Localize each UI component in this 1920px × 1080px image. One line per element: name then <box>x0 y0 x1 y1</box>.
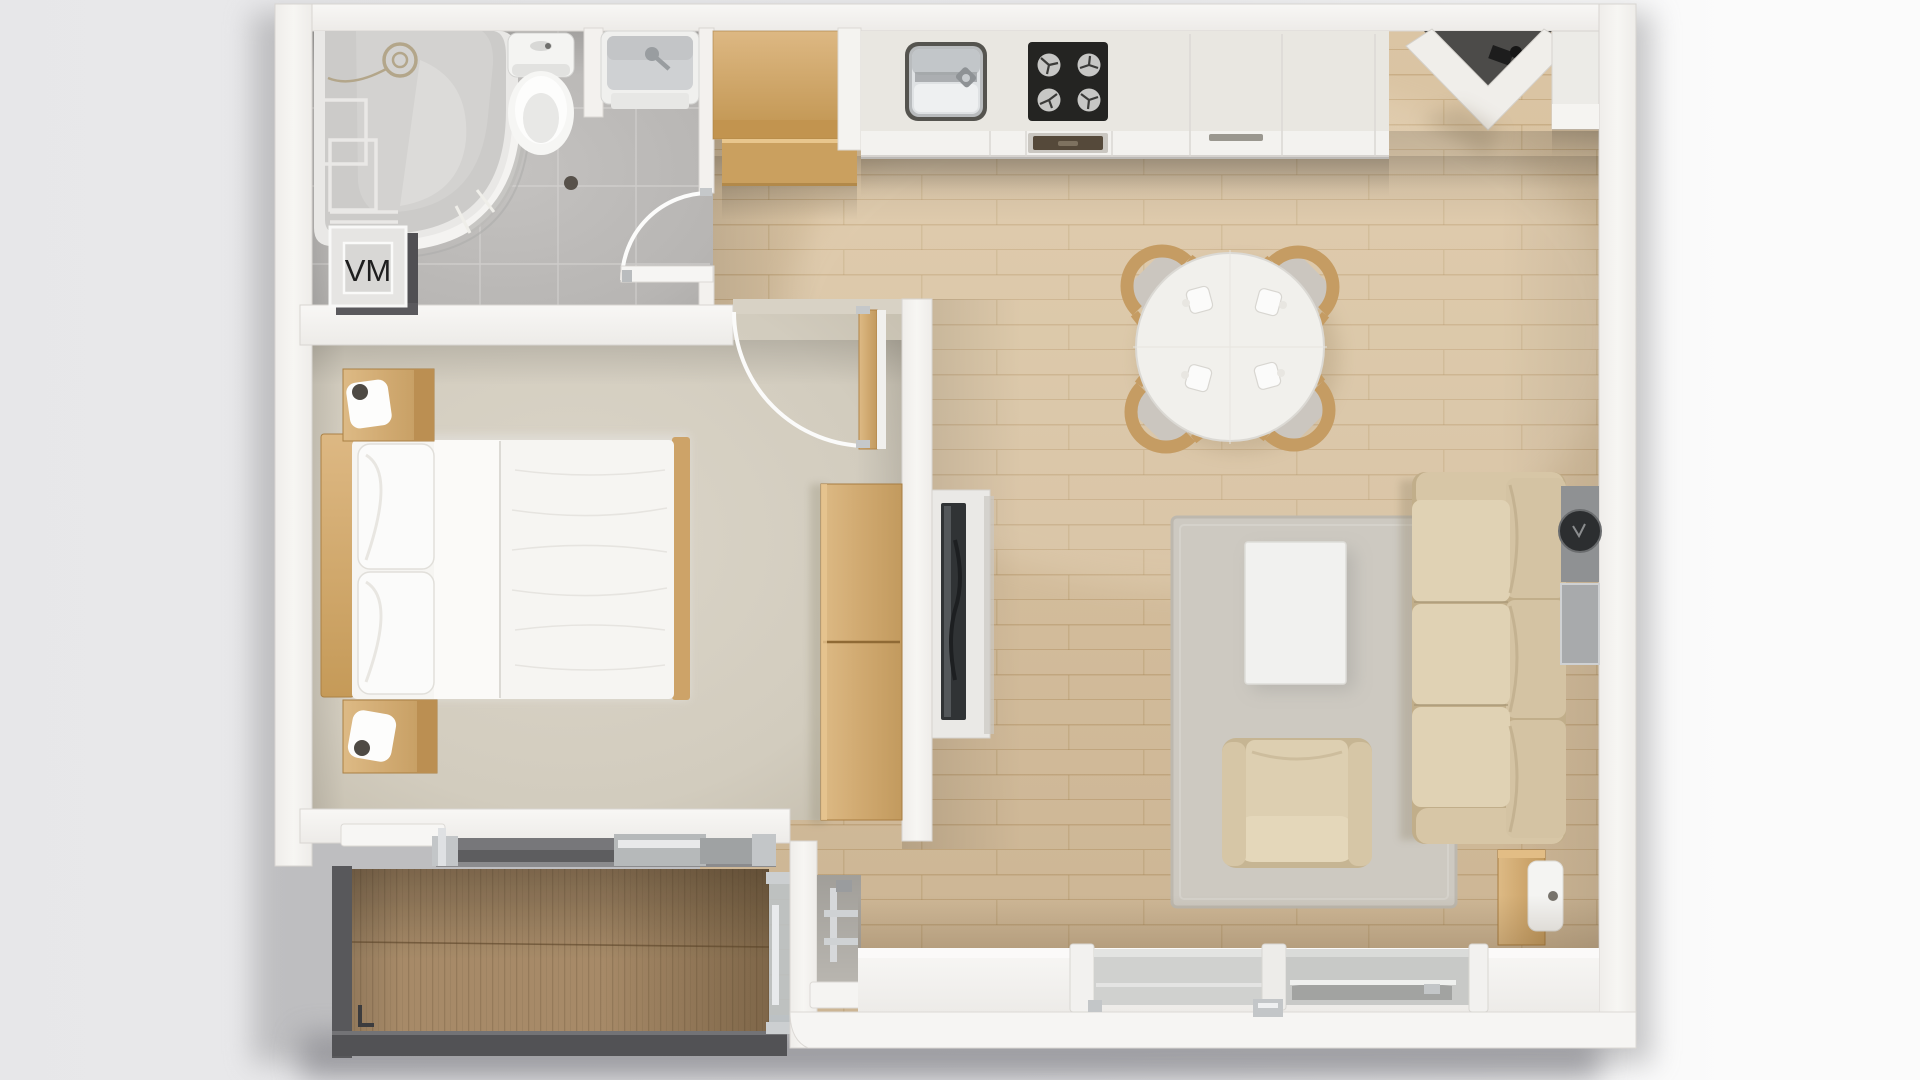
svg-text:VM: VM <box>345 253 392 288</box>
